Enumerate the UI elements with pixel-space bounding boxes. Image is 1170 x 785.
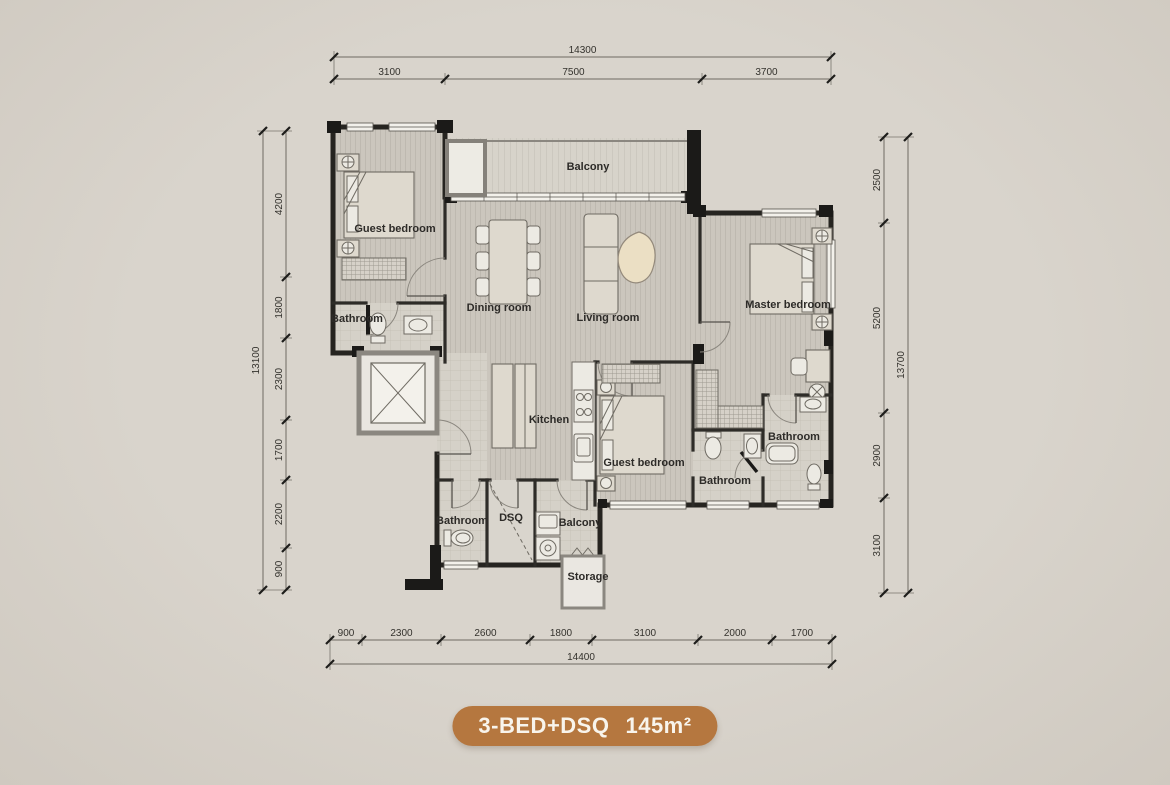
dining-table bbox=[489, 220, 527, 304]
window-guest1-top-2 bbox=[389, 123, 435, 131]
dimension-right: 250052002900310013700 bbox=[872, 133, 914, 597]
dimension-bottom: 90023002600180031002000170014400 bbox=[326, 628, 836, 670]
vanity-bathroom-1 bbox=[404, 316, 432, 334]
toilet-bathroom-2 bbox=[705, 432, 721, 459]
svg-text:1800: 1800 bbox=[550, 628, 573, 639]
room-label-bathroom-2: Bathroom bbox=[699, 475, 751, 487]
svg-text:2000: 2000 bbox=[724, 628, 747, 639]
svg-text:7500: 7500 bbox=[562, 67, 585, 78]
elevator bbox=[359, 353, 437, 433]
washing-machine bbox=[536, 537, 560, 560]
svg-text:1700: 1700 bbox=[274, 438, 285, 461]
toilet-bathroom-3 bbox=[807, 464, 821, 490]
window-bathroom2-bottom bbox=[707, 501, 749, 509]
room-label-balcony-main: Balcony bbox=[567, 161, 611, 173]
vanity-bathroom-3 bbox=[800, 397, 826, 412]
svg-text:14300: 14300 bbox=[569, 45, 597, 56]
cooktop bbox=[574, 390, 593, 422]
sofa bbox=[584, 214, 618, 314]
svg-text:4200: 4200 bbox=[274, 192, 285, 215]
svg-text:13700: 13700 bbox=[896, 351, 907, 379]
room-label-guest-bedroom-2: Guest bedroom bbox=[603, 457, 685, 469]
plan-type-label: 3-BED+DSQ bbox=[478, 713, 609, 739]
room-label-living-room: Living room bbox=[577, 312, 640, 324]
svg-text:1700: 1700 bbox=[791, 628, 814, 639]
svg-text:3100: 3100 bbox=[634, 628, 657, 639]
room-label-dsq: DSQ bbox=[499, 512, 523, 524]
svg-text:1800: 1800 bbox=[274, 296, 285, 319]
kitchen-sink bbox=[574, 434, 593, 462]
svg-text:3100: 3100 bbox=[872, 534, 883, 557]
svg-text:13100: 13100 bbox=[251, 346, 262, 374]
window-master-right bbox=[827, 240, 835, 308]
room-label-bathroom-1: Bathroom bbox=[331, 313, 383, 325]
svg-text:3100: 3100 bbox=[378, 67, 401, 78]
svg-text:900: 900 bbox=[274, 560, 285, 577]
svg-text:5200: 5200 bbox=[872, 306, 883, 329]
svg-text:2900: 2900 bbox=[872, 444, 883, 467]
laundry-sink bbox=[536, 512, 560, 535]
plan-title-badge: 3-BED+DSQ 145m² bbox=[452, 706, 717, 746]
vanity-bathroom-2 bbox=[744, 434, 761, 458]
room-label-bathroom-4: Bathroom bbox=[436, 515, 488, 527]
wardrobe-guest-2 bbox=[602, 364, 660, 383]
guest-bed-2 bbox=[597, 380, 664, 491]
window-bathroom3-bottom bbox=[777, 501, 819, 509]
window-guest2-bottom bbox=[610, 501, 686, 509]
svg-text:2200: 2200 bbox=[274, 502, 285, 525]
plan-area-label: 145m² bbox=[625, 713, 691, 739]
svg-text:900: 900 bbox=[338, 628, 355, 639]
room-label-guest-bedroom-1: Guest bedroom bbox=[354, 223, 436, 235]
svg-text:2300: 2300 bbox=[390, 628, 413, 639]
dimension-top: 31007500370014300 bbox=[330, 45, 835, 85]
svg-text:2600: 2600 bbox=[474, 628, 497, 639]
room-label-kitchen: Kitchen bbox=[529, 414, 570, 426]
room-label-dining-room: Dining room bbox=[467, 302, 532, 314]
window-guest1-top bbox=[347, 123, 373, 131]
window-bathroom4-bottom bbox=[444, 561, 478, 569]
window-master-top bbox=[762, 209, 816, 217]
svg-text:2500: 2500 bbox=[872, 168, 883, 191]
room-label-master-bedroom: Master bedroom bbox=[745, 299, 831, 311]
svg-text:3700: 3700 bbox=[755, 67, 778, 78]
duct-box bbox=[447, 141, 485, 195]
floor-plan: Guest bedroomBathroomBalconyDining roomL… bbox=[0, 0, 1170, 785]
svg-text:14400: 14400 bbox=[567, 652, 595, 663]
room-label-storage: Storage bbox=[568, 571, 609, 583]
svg-text:2300: 2300 bbox=[274, 367, 285, 390]
room-label-balcony-service: Balcony bbox=[559, 517, 603, 529]
wardrobe-guest-1 bbox=[342, 258, 406, 280]
bathtub-bathroom-3 bbox=[766, 443, 798, 464]
room-label-bathroom-3: Bathroom bbox=[768, 431, 820, 443]
dimension-left: 4200180023001700220090013100 bbox=[251, 127, 292, 594]
toilet-bathroom-4 bbox=[444, 530, 473, 546]
